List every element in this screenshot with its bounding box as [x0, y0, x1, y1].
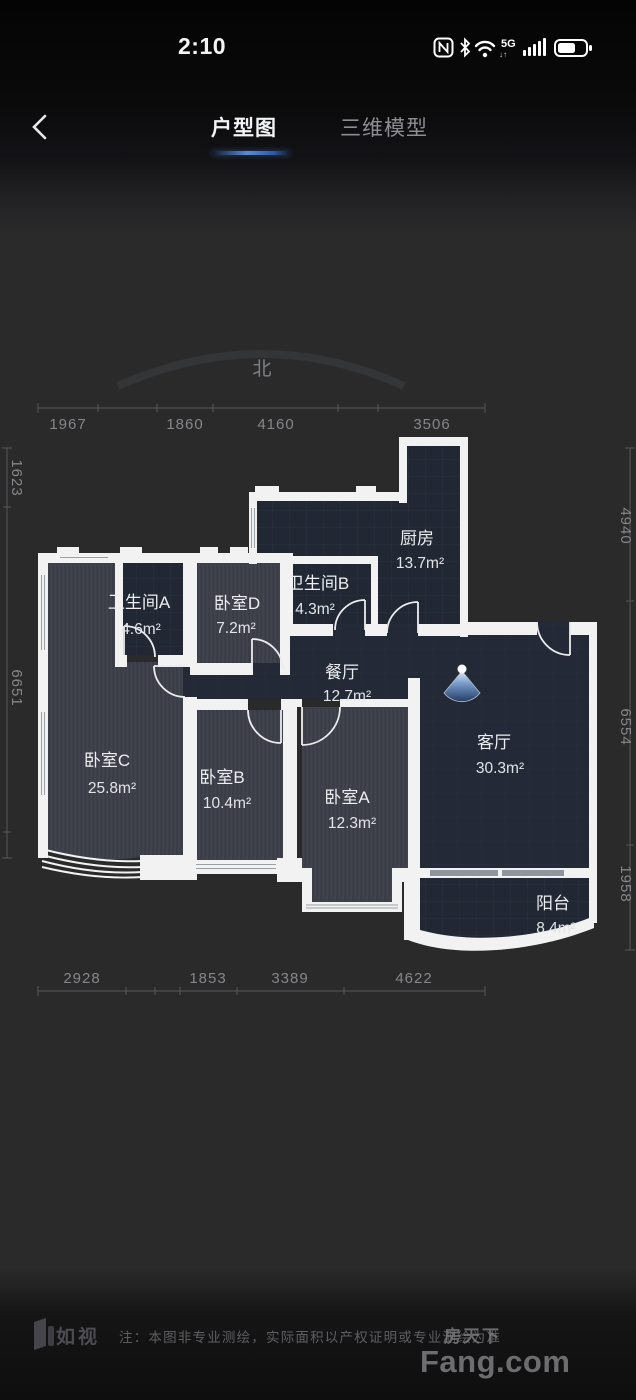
area-living: 30.3m² — [476, 760, 524, 777]
dim-bottom-2: 3389 — [271, 970, 308, 987]
dim-right-2: 1958 — [617, 865, 634, 902]
back-button[interactable] — [28, 112, 54, 142]
label-bath-b: 卫生间B — [287, 574, 349, 593]
bluetooth-icon — [461, 40, 469, 56]
tab-floorplan[interactable]: 户型图 — [204, 112, 284, 142]
north-label: 北 — [252, 358, 271, 380]
label-balcony: 阳台 — [536, 894, 570, 913]
fang-watermark-en: Fang.com — [420, 1346, 570, 1377]
label-bed-c: 卧室C — [84, 751, 130, 770]
label-living: 客厅 — [477, 733, 511, 752]
compass: 北 — [118, 354, 404, 386]
svg-text:5G: 5G — [501, 38, 516, 50]
area-bed-d: 7.2m² — [216, 620, 256, 637]
area-bed-a: 12.3m² — [328, 815, 376, 832]
dim-top-3: 3506 — [413, 416, 450, 433]
area-kitchen: 13.7m² — [396, 555, 444, 572]
sliding-window — [430, 870, 564, 876]
tab-3d-model[interactable]: 三维模型 — [333, 112, 435, 142]
fang-watermark: 房天下 Fang.com — [420, 1328, 570, 1377]
area-bed-c: 25.8m² — [88, 780, 136, 797]
area-bed-b: 10.4m² — [203, 795, 251, 812]
room-bed-d — [197, 563, 280, 663]
status-icons: 5G ↓↑ — [433, 35, 601, 70]
label-dining: 餐厅 — [325, 663, 359, 682]
status-time: 2:10 — [178, 33, 226, 60]
dim-left-0: 1623 — [8, 459, 25, 496]
svg-text:↓↑: ↓↑ — [499, 50, 507, 59]
dim-left-1: 6651 — [8, 669, 25, 706]
back-chevron-icon — [34, 116, 45, 138]
dim-bottom-1: 1853 — [189, 970, 226, 987]
label-bed-b: 卧室B — [199, 768, 244, 787]
active-tab-underline — [212, 151, 290, 155]
rushi-brand-text: 如视 — [56, 1322, 100, 1349]
fang-watermark-cn: 房天下 — [444, 1328, 570, 1345]
label-bed-a: 卧室A — [324, 788, 370, 807]
dim-top-1: 1860 — [166, 416, 203, 433]
battery-icon — [555, 40, 592, 56]
nfc-icon — [435, 39, 453, 57]
label-kitchen: 厨房 — [400, 529, 434, 548]
dim-right-0: 4940 — [617, 507, 634, 544]
area-bath-b: 4.3m² — [295, 601, 335, 618]
label-bed-d: 卧室D — [214, 594, 260, 613]
dim-top-2: 4160 — [257, 416, 294, 433]
dim-top-0: 1967 — [49, 416, 86, 433]
label-bath-a: 卫生间A — [108, 593, 171, 612]
dim-bottom-3: 4622 — [395, 970, 432, 987]
area-balcony: 8.4m² — [536, 920, 576, 937]
wifi-icon — [476, 42, 494, 57]
rushi-logo-icon — [32, 1316, 56, 1361]
dim-right-1: 6554 — [617, 708, 634, 745]
dim-bottom-0: 2928 — [63, 970, 100, 987]
area-dining: 12.7m² — [323, 688, 371, 705]
area-bath-a: 4.6m² — [121, 621, 161, 638]
signal-bars-icon — [523, 38, 546, 56]
floorplan-canvas[interactable]: 北 1967 1860 4160 3506 2928 1853 3389 462… — [0, 0, 636, 1400]
network-5g-icon: 5G ↓↑ — [499, 38, 516, 59]
